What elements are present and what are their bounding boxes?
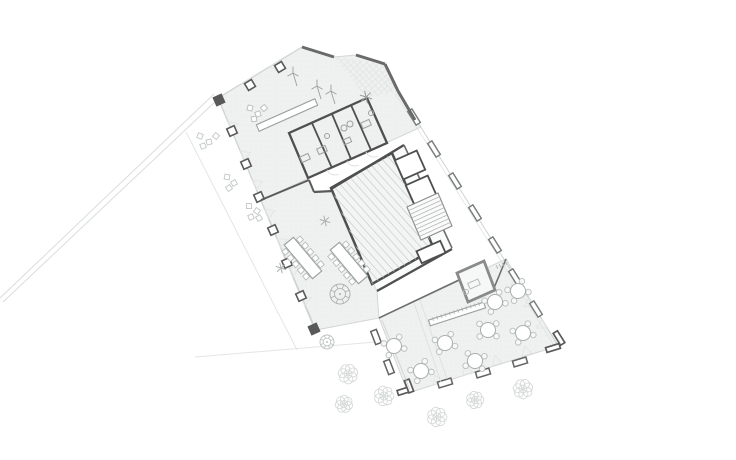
tree xyxy=(335,395,352,412)
table-chair xyxy=(510,328,516,334)
indoor-tree xyxy=(320,335,334,349)
round-table xyxy=(468,354,483,369)
terrace-chair xyxy=(200,143,206,149)
loose-chair xyxy=(251,116,257,122)
terrace-chair xyxy=(231,180,238,187)
tree-branch xyxy=(331,339,334,340)
tree-trunk xyxy=(326,341,328,343)
terrace-chair xyxy=(197,133,203,139)
tree xyxy=(375,386,394,406)
tree xyxy=(428,407,447,427)
table-chair xyxy=(429,369,435,375)
site-boundary-line xyxy=(3,99,218,302)
terrace-chair xyxy=(224,174,230,180)
terrace-chair xyxy=(254,208,261,215)
round-table xyxy=(387,339,402,354)
table-chair xyxy=(452,343,458,349)
terrace-chair xyxy=(256,215,263,222)
tree-branch xyxy=(321,343,324,344)
partition-wall xyxy=(314,191,333,192)
table-chair xyxy=(422,358,428,364)
round-table xyxy=(516,326,531,341)
terrace-chair xyxy=(212,132,219,139)
tree-branch xyxy=(324,336,325,339)
round-table xyxy=(438,336,453,351)
tree-branch xyxy=(328,336,329,339)
terrace-chair xyxy=(247,204,252,209)
tree xyxy=(338,364,358,383)
terrace-chair xyxy=(206,139,212,145)
terrace-chair xyxy=(248,214,254,220)
table-chair xyxy=(519,278,525,284)
round-table xyxy=(511,284,526,299)
site-boundary-line xyxy=(0,94,214,298)
table-chair xyxy=(503,300,509,306)
terrace-chair xyxy=(226,185,233,192)
floor-plan-canvas xyxy=(0,0,736,460)
table-chair xyxy=(432,337,438,343)
tree xyxy=(513,379,533,398)
round-table xyxy=(414,364,429,379)
table-chair xyxy=(401,346,407,352)
facade-column xyxy=(384,359,395,374)
table-chair xyxy=(482,298,488,304)
floor-plan-page xyxy=(0,0,736,460)
door-swing xyxy=(347,161,359,166)
tree-trunk xyxy=(339,293,341,295)
tree xyxy=(467,391,484,408)
loose-chair xyxy=(247,105,253,111)
tree-branch xyxy=(331,343,334,344)
plant-symbol xyxy=(277,265,284,272)
door-swing xyxy=(327,170,339,175)
table-chair xyxy=(511,298,517,304)
colonnade-pilaster xyxy=(428,141,441,157)
table-chair xyxy=(408,367,414,373)
table-chair xyxy=(505,287,511,293)
tree-branch xyxy=(321,339,324,340)
table-chair xyxy=(531,332,537,338)
round-table xyxy=(481,323,496,338)
table-chair xyxy=(526,289,532,295)
table-chair xyxy=(414,378,420,384)
round-table xyxy=(488,295,503,310)
table-chair xyxy=(381,341,387,347)
